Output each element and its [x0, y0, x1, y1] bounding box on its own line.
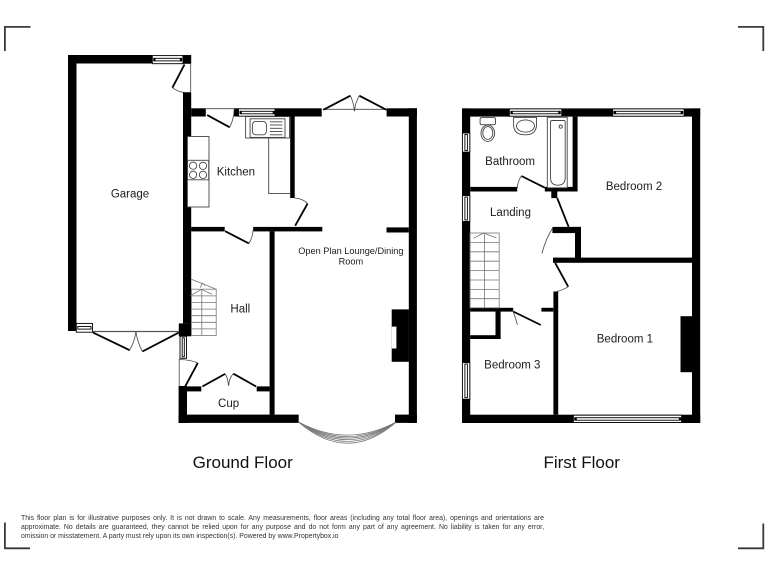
svg-text:Bathroom: Bathroom — [485, 156, 535, 168]
svg-text:Bedroom 3: Bedroom 3 — [484, 359, 540, 371]
svg-text:Cup: Cup — [218, 398, 239, 410]
svg-text:Kitchen: Kitchen — [217, 167, 255, 179]
svg-text:First Floor: First Floor — [543, 453, 620, 472]
svg-text:Garage: Garage — [111, 188, 149, 200]
svg-text:Open Plan Lounge/Dining: Open Plan Lounge/Dining — [298, 246, 403, 256]
svg-text:Room: Room — [339, 256, 364, 266]
svg-text:Hall: Hall — [230, 303, 250, 315]
svg-text:Ground Floor: Ground Floor — [193, 453, 293, 472]
svg-text:Landing: Landing — [490, 207, 531, 219]
svg-text:Bedroom 1: Bedroom 1 — [597, 333, 653, 345]
svg-text:Bedroom 2: Bedroom 2 — [606, 181, 662, 193]
